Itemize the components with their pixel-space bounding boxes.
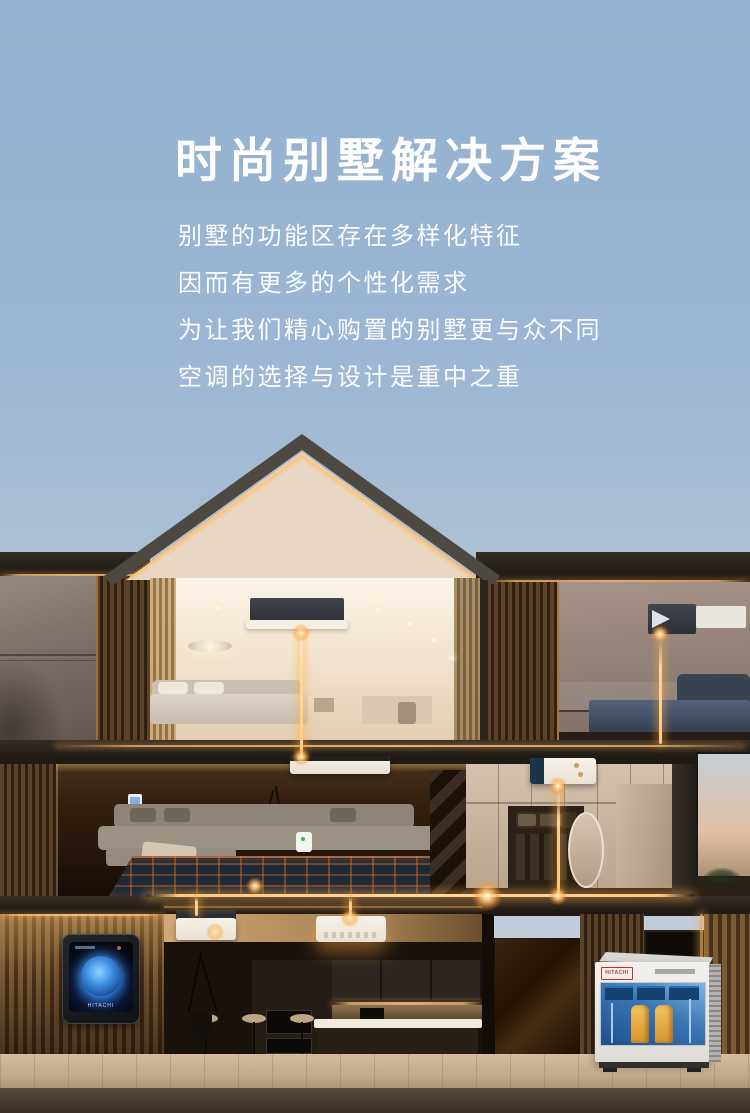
window-mullion xyxy=(0,660,98,661)
daybed-base xyxy=(589,700,750,734)
downlight xyxy=(450,656,454,660)
plant-leaves xyxy=(702,868,742,882)
suitcase xyxy=(518,814,536,826)
status-icons xyxy=(75,946,95,949)
glow-node xyxy=(341,909,359,927)
glow-beam-bedroom xyxy=(300,632,303,758)
top-floor-bedroom xyxy=(150,578,480,740)
ceiling-glow xyxy=(56,764,466,772)
left-window xyxy=(0,576,98,742)
backsplash xyxy=(332,1005,482,1019)
nightstand xyxy=(314,698,334,712)
glow-node xyxy=(246,877,264,895)
gable-pillar xyxy=(126,580,152,740)
hero-line-3: 为让我们精心购置的别墅更与众不同 xyxy=(178,310,602,345)
heat-exchanger-block xyxy=(637,986,665,1000)
air-purifier-device xyxy=(296,832,312,852)
unit-side-panel xyxy=(709,964,721,1062)
page-title: 时尚别墅解决方案 xyxy=(175,122,607,191)
glow-node xyxy=(292,748,310,766)
wall-controller: HITACHI xyxy=(62,934,140,1024)
compressor xyxy=(631,1005,649,1043)
bed-pillow xyxy=(194,682,224,694)
downlight xyxy=(376,608,380,612)
ceiling-lamp xyxy=(188,640,232,652)
downlight xyxy=(408,622,412,626)
glow-node xyxy=(472,881,503,912)
led-strip xyxy=(56,764,58,896)
model-text-bar xyxy=(655,969,695,974)
sofa-pillow xyxy=(164,808,190,822)
glow-beam-kitchen-left xyxy=(195,896,198,916)
gable-roof xyxy=(100,428,504,584)
glow-beam-closet xyxy=(557,786,560,896)
duct-box xyxy=(696,606,746,628)
coffee-machine xyxy=(360,1008,384,1019)
branch-decor xyxy=(188,952,202,1011)
ac-grille xyxy=(324,932,378,938)
pipe-fitting xyxy=(574,763,579,768)
glow-node xyxy=(292,624,310,642)
glow-node xyxy=(206,923,224,941)
glow-node xyxy=(549,777,567,795)
wifi-icon xyxy=(117,946,121,950)
controller-screen: HITACHI xyxy=(69,942,133,1012)
sofa-pillow xyxy=(130,808,156,822)
heat-exchanger-block xyxy=(669,986,699,1000)
ac-end-cap xyxy=(530,758,544,784)
wall-column xyxy=(482,914,494,1060)
refrigerant-pipe xyxy=(689,999,691,1043)
glow-line-main xyxy=(146,894,694,897)
temperature-orb xyxy=(81,956,121,996)
upper-cabinets xyxy=(332,960,482,1000)
led-strip xyxy=(56,745,744,747)
glossy-panel-wall xyxy=(494,938,581,1060)
oval-mirror xyxy=(568,812,604,888)
promo-poster: 时尚别墅解决方案 别墅的功能区存在多样化特征 因而有更多的个性化需求 为让我们精… xyxy=(0,0,750,1113)
mid-column xyxy=(672,764,696,896)
island-countertop xyxy=(314,1019,482,1028)
pipe-fitting xyxy=(578,772,583,777)
controller-brand-label: HITACHI xyxy=(69,1003,133,1009)
glow-node xyxy=(651,625,669,643)
unit-foot xyxy=(687,1068,701,1072)
bed-pillow xyxy=(158,682,188,694)
window-mullion xyxy=(0,654,98,656)
led-strip xyxy=(0,914,164,916)
bed-mattress xyxy=(150,694,308,724)
outdoor-unit: HITACHI xyxy=(593,950,725,1070)
sunset-window xyxy=(696,752,750,882)
mid-left-wall xyxy=(0,764,58,896)
curtain xyxy=(454,578,480,740)
hero-line-4: 空调的选择与设计是重中之重 xyxy=(178,357,523,392)
chair xyxy=(398,702,416,724)
sofa-back xyxy=(114,804,414,828)
branch-decor xyxy=(201,959,218,1011)
built-in-appliance xyxy=(266,1038,312,1054)
brand-logo: HITACHI xyxy=(601,967,633,980)
rug-glowing-pattern xyxy=(108,856,458,898)
vase xyxy=(192,1012,212,1038)
unit-foot xyxy=(603,1068,617,1072)
refrigerant-pipe xyxy=(611,1003,613,1043)
desk xyxy=(362,696,432,724)
glow-node xyxy=(549,887,567,905)
hanging-clothes xyxy=(516,834,576,880)
wardrobe-seam xyxy=(466,802,616,804)
stair-glimpse xyxy=(616,784,672,888)
downlight xyxy=(432,638,436,642)
hero-line-1: 别墅的功能区存在多样化特征 xyxy=(178,216,523,251)
glow-beam-terrace xyxy=(659,634,662,744)
sofa-pillow xyxy=(330,808,356,822)
downlight xyxy=(216,606,220,610)
cutaway-window xyxy=(600,982,706,1046)
device-indicator xyxy=(301,837,305,841)
unit-front-panel: HITACHI xyxy=(595,962,709,1062)
ducted-ac-unit-bedroom xyxy=(250,598,344,622)
right-wing xyxy=(476,552,750,742)
wood-slat-wall xyxy=(487,582,559,742)
led-strip xyxy=(96,576,98,742)
heat-exchanger-block xyxy=(605,986,633,1000)
window-planter xyxy=(696,876,750,896)
right-roof-band xyxy=(476,552,750,582)
compressor xyxy=(655,1005,673,1043)
ground-strip xyxy=(0,1088,750,1113)
hero-line-2: 因而有更多的个性化需求 xyxy=(178,263,470,298)
staircase xyxy=(430,770,466,896)
glow-line-kitchen xyxy=(164,906,482,908)
